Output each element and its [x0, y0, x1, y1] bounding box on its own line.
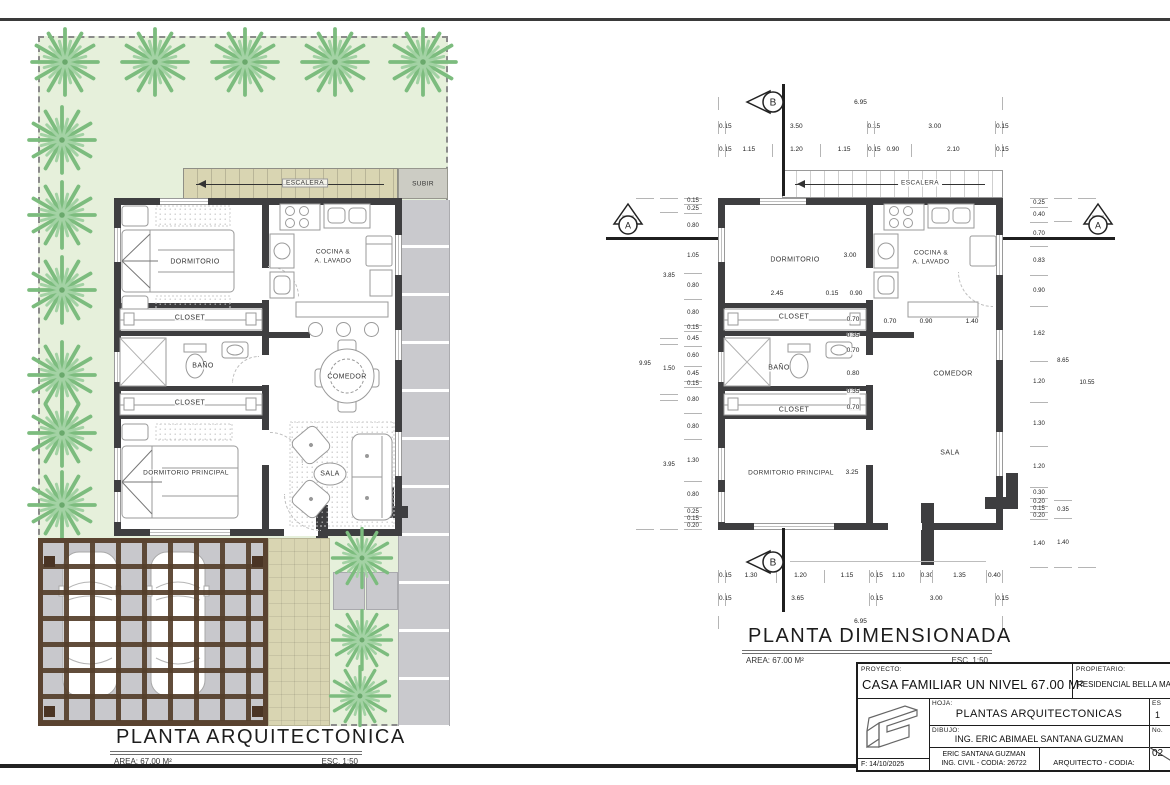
pergola-post	[252, 706, 263, 717]
dim-label: 0.20	[684, 522, 702, 530]
dim-label: 0.15	[995, 121, 1003, 134]
tree-icon	[24, 177, 100, 253]
dim-label: 1.20	[1030, 361, 1048, 402]
stairs-direction-arrow	[795, 184, 985, 185]
svg-text:A: A	[1095, 221, 1101, 231]
proyecto-label: PROYECTO:	[861, 666, 902, 673]
stairs-label: ESCALERA	[282, 179, 328, 188]
fecha: F: 14/10/2025	[858, 758, 929, 770]
dim-label: 0.30	[1030, 487, 1048, 498]
tree-icon	[117, 24, 193, 100]
right-plan-title-group: PLANTA DIMENSIONADA AREA: 67.00 M² ESC. …	[742, 625, 992, 665]
dim-label: 8.65	[1054, 221, 1072, 500]
room-label-closet: CLOSET	[175, 400, 205, 407]
dim-label: 0.80	[684, 273, 702, 299]
stairs-label: ESCALERA	[898, 180, 942, 187]
dim-label: 3.95	[660, 400, 678, 530]
bedrooms-furniture	[114, 198, 266, 538]
dibujo-label: DIBUJO:	[932, 727, 960, 734]
dim-label: 0.80	[847, 371, 860, 378]
cell-hoja: HOJA: PLANTAS ARQUITECTONICAS	[929, 698, 1150, 726]
room-label-cocina: COCINA &	[316, 249, 350, 256]
dim-label: 0.40	[1030, 207, 1048, 221]
dim-label: 0.15	[718, 593, 725, 606]
window	[996, 432, 1003, 476]
dim-col-right-inner: 0.250.400.700.830.901.621.201.301.200.30…	[1030, 198, 1048, 568]
dim-label: 0.35	[1054, 500, 1072, 518]
dim-label: 0.45	[684, 366, 702, 381]
dim-label: 0.15	[867, 121, 874, 134]
section-marker-b-bottom: B	[744, 548, 788, 576]
svg-text:B: B	[770, 558, 777, 569]
cell-hoja-numero: 02	[1149, 747, 1170, 770]
dim-row-top-main: 0.153.500.153.000.15	[718, 121, 1003, 134]
room-label-cocina2: A. LAVADO	[913, 259, 950, 266]
hoja-numero-value: 02	[1152, 748, 1163, 759]
dim-col-left-inner: 0.150.250.801.050.800.800.150.450.600.45…	[684, 198, 702, 530]
room-label-bano: BAÑO	[768, 365, 789, 372]
dim-label: 3.85	[660, 212, 678, 338]
dim-label: 0.80	[684, 387, 702, 413]
dim-label: 1.15	[820, 144, 867, 157]
room-label-sala: SALA	[940, 450, 960, 457]
propietario-value: RESIDENCIAL BELLA MA	[1077, 680, 1170, 689]
room-label-closet: CLOSET	[779, 407, 809, 414]
closets-bath-fixtures	[718, 198, 870, 538]
cell-proyecto: PROYECTO: CASA FAMILIAR UN NIVEL 67.00 M…	[858, 664, 1072, 699]
cell-propietario: PROPIETARIO: RESIDENCIAL BELLA MA	[1072, 664, 1170, 699]
dim-label: 1.10	[876, 570, 920, 583]
dim-label: 0.15	[869, 593, 876, 606]
dim-label: 0.80	[684, 299, 702, 325]
dim-label: 2.45	[771, 291, 784, 298]
dim-label: 0.15	[718, 570, 725, 583]
dim-label: 3.00	[844, 253, 857, 260]
tree-icon	[207, 24, 283, 100]
tree-icon	[297, 24, 373, 100]
svg-text:B: B	[770, 98, 777, 109]
cell-numero: No.	[1149, 725, 1170, 748]
tree-icon	[385, 24, 461, 100]
stepping-stone-column	[398, 200, 450, 726]
dim-label: 3.65	[725, 593, 869, 606]
room-label-cocina: COCINA &	[914, 250, 948, 257]
cell-escala: ES 1	[1149, 698, 1170, 726]
pergola-post	[44, 556, 55, 567]
escala-label: ES	[1152, 700, 1161, 707]
dim-label: 0.20	[1030, 498, 1048, 506]
sheet-frame-top	[0, 18, 1170, 21]
dim-label: 0.15	[995, 593, 1003, 606]
dim-label: 1.15	[824, 570, 870, 583]
dim-label	[660, 198, 678, 212]
cell-firma-ing: ERIC SANTANA GUZMAN ING. CIVIL - CODIA: …	[929, 747, 1040, 770]
section-marker-a-left: A	[610, 200, 646, 238]
dim-label: 0.15	[718, 144, 725, 157]
plan-scale: ESC. 1:50	[322, 757, 358, 766]
dim-label: 0.80	[684, 213, 702, 239]
dim-col-right-outer: 10.55	[1078, 198, 1096, 568]
dim-label: 0.70	[847, 405, 860, 412]
dim-label: 1.62	[1030, 306, 1048, 361]
plan-area: AREA: 67.00 M²	[114, 757, 172, 766]
pergola-post	[252, 556, 263, 567]
tree-icon	[27, 24, 103, 100]
room-label-cocina2: A. LAVADO	[315, 258, 352, 265]
dim-label: 0.70	[1030, 222, 1048, 246]
numero-label: No.	[1152, 727, 1163, 734]
tree-icon	[24, 252, 100, 328]
dim-label: 0.25	[684, 204, 702, 213]
dim-label: 1.15	[725, 144, 772, 157]
tree-icon	[24, 102, 100, 178]
dim-label: 3.50	[725, 121, 867, 134]
dim-label: 0.25	[1030, 198, 1048, 207]
window	[996, 330, 1003, 360]
pergola-grid	[38, 538, 268, 726]
dim-label: 0.45	[684, 331, 702, 346]
entry-door-gap	[888, 523, 922, 530]
dim-label: 1.40	[966, 319, 979, 326]
dim-label: 10.55	[1078, 198, 1096, 568]
porch-line	[790, 561, 986, 562]
dim-label: 0.15	[826, 291, 839, 298]
company-logo	[863, 701, 923, 749]
hoja-label: HOJA:	[932, 700, 953, 707]
tree-icon	[328, 524, 396, 592]
room-label-dormitorio: DORMITORIO	[170, 259, 219, 266]
firma-ing-nombre: ERIC SANTANA GUZMAN	[929, 750, 1039, 759]
room-label-comedor: COMEDOR	[933, 371, 972, 378]
dim-label: 1.20	[1030, 446, 1048, 487]
cell-firma-arq: ARQUITECTO - CODIA:	[1039, 747, 1150, 770]
wall-porch	[921, 503, 934, 565]
dim-label: 0.70	[847, 317, 860, 324]
dim-label: 0.25	[684, 507, 702, 516]
walkway	[268, 538, 330, 726]
dim-label: 0.15	[995, 144, 1003, 157]
dim-label: 0.20	[1030, 512, 1048, 520]
left-plan-title-group: PLANTA ARQUITECTONICA AREA: 67.00 M² ESC…	[110, 726, 362, 766]
firma-arq-label: ARQUITECTO - CODIA:	[1039, 758, 1149, 767]
tree-icon	[24, 395, 100, 471]
room-label-closet: CLOSET	[779, 314, 809, 321]
plan-title: PLANTA ARQUITECTONICA	[110, 726, 362, 755]
section-marker-a-right: A	[1080, 200, 1116, 238]
dim-row-bottom-main: 0.153.650.153.000.15	[718, 593, 1003, 606]
hoja-value: PLANTAS ARQUITECTONICAS	[929, 708, 1149, 720]
dim-label: 1.40	[1030, 519, 1048, 568]
room-label-closet: CLOSET	[175, 315, 205, 322]
dim-label: 1.20	[772, 144, 821, 157]
svg-text:A: A	[625, 221, 631, 231]
dim-col-left-mid: 3.851.503.95	[660, 198, 678, 530]
propietario-label: PROPIETARIO:	[1076, 666, 1125, 673]
subir-label: SUBIR	[412, 181, 434, 188]
dim-label: 1.05	[684, 239, 702, 273]
section-marker-b-top: B	[744, 88, 788, 116]
dim-label: 0.80	[684, 413, 702, 439]
dim-label: 1.35	[932, 570, 985, 583]
wall-kitchen-stub	[866, 332, 914, 338]
plan-area: AREA: 67.00 M²	[746, 656, 804, 665]
dibujo-value: ING. ERIC ABIMAEL SANTANA GUZMAN	[929, 734, 1149, 744]
dim-label: 0.60	[684, 346, 702, 366]
dim-label: 1.50	[660, 344, 678, 394]
plan-title: PLANTA DIMENSIONADA	[742, 625, 992, 654]
room-label-dormitorio: DORMITORIO	[770, 257, 819, 264]
dim-label	[1054, 198, 1072, 221]
living-dining-furniture	[266, 326, 398, 536]
dim-label: 1.30	[684, 439, 702, 481]
room-label-sala: SALA	[320, 471, 340, 478]
dim-label: 0.40	[986, 570, 1004, 583]
room-label-bano: BAÑO	[192, 363, 213, 370]
dim-label: 0.90	[1030, 275, 1048, 306]
dim-label: 0.15	[867, 144, 874, 157]
pergola-post	[44, 706, 55, 717]
room-label-comedor: COMEDOR	[327, 374, 366, 381]
wall-porch	[1006, 473, 1018, 509]
dim-label: 0.15	[869, 570, 876, 583]
proyecto-value: CASA FAMILIAR UN NIVEL 67.00 M²	[862, 677, 1084, 692]
dim-label: 3.25	[846, 470, 859, 477]
cell-logo: F: 14/10/2025	[858, 698, 930, 770]
drawing-sheet: ESCALERA SUBIR	[0, 0, 1170, 785]
dim-label: 9.95	[636, 198, 654, 530]
dim-row-top-detail: 0.151.151.201.150.150.902.100.15	[718, 144, 1003, 157]
dim-label: 0.70	[884, 319, 897, 326]
dim-label: 0.90	[874, 144, 911, 157]
dim-label: 1.30	[1030, 402, 1048, 446]
dim-col-right-mid: 8.650.351.40	[1054, 198, 1072, 568]
dim-label: 0.80	[684, 481, 702, 507]
cell-dibujo: DIBUJO: ING. ERIC ABIMAEL SANTANA GUZMAN	[929, 725, 1150, 748]
room-label-dormitorio-principal: DORMITORIO PRINCIPAL	[143, 470, 229, 477]
tree-icon	[24, 467, 100, 543]
firma-ing-codia: ING. CIVIL - CODIA: 26722	[929, 759, 1039, 768]
dim-label: 0.90	[850, 291, 863, 298]
dim-label: 0.70	[847, 348, 860, 355]
dim-col-left-outer: 9.95	[636, 198, 654, 530]
dim-label: 0.35	[847, 389, 860, 396]
dim-label: 1.40	[1054, 518, 1072, 568]
dim-label: 3.00	[876, 593, 995, 606]
escala-value: 1	[1155, 710, 1160, 720]
dim-label: 3.00	[874, 121, 995, 134]
dim-label: 0.90	[920, 319, 933, 326]
dim-label: 0.30	[920, 570, 933, 583]
tree-icon	[326, 662, 394, 730]
dim-label: 0.83	[1030, 246, 1048, 275]
dim-label: 0.15	[718, 121, 725, 134]
room-label-dormitorio-principal: DORMITORIO PRINCIPAL	[748, 470, 834, 477]
dim-label: 0.35	[847, 333, 860, 340]
dim-label: 2.10	[911, 144, 995, 157]
